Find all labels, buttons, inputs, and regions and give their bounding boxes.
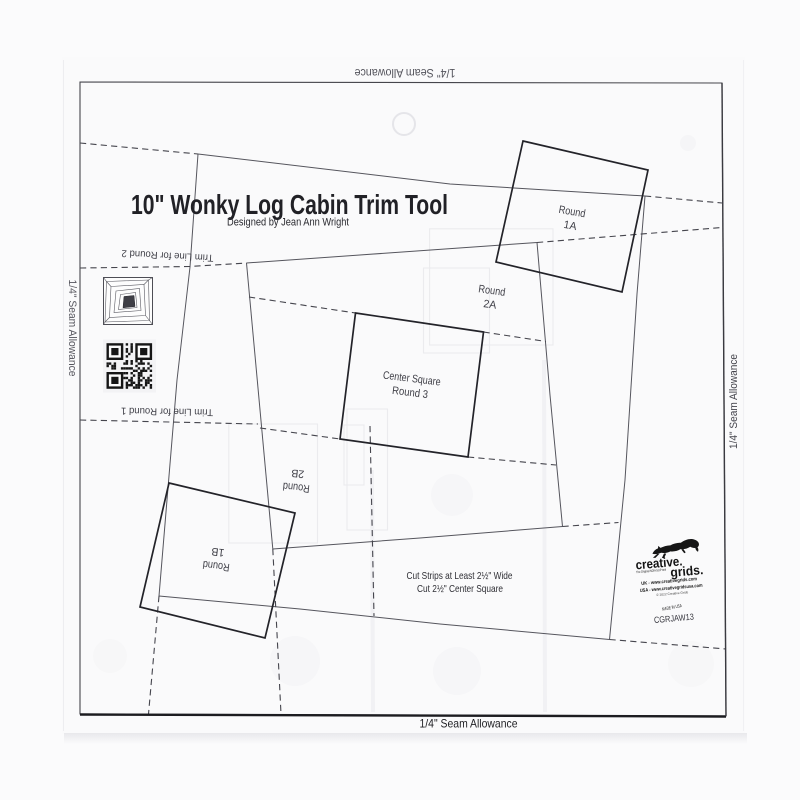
svg-text:1B: 1B [211, 545, 225, 558]
svg-text:2B: 2B [291, 466, 305, 479]
svg-text:1/4" Seam Allowance: 1/4" Seam Allowance [420, 717, 518, 731]
svg-text:10" Wonky Log Cabin Trim Tool: 10" Wonky Log Cabin Trim Tool [131, 189, 448, 220]
svg-text:Trim Line for Round 1: Trim Line for Round 1 [121, 405, 214, 418]
svg-text:1/4" Seam Allowance: 1/4" Seam Allowance [728, 354, 740, 449]
svg-text:1/4" Seam Allowance: 1/4" Seam Allowance [355, 66, 456, 78]
svg-text:Cut 2½" Center Square: Cut 2½" Center Square [417, 584, 503, 595]
svg-text:Designed by Jean Ann Wright: Designed by Jean Ann Wright [227, 217, 349, 229]
svg-text:Cut Strips at Least 2½" Wide: Cut Strips at Least 2½" Wide [407, 571, 513, 582]
svg-text:1/4" Seam Allowance: 1/4" Seam Allowance [66, 280, 78, 377]
svg-text:2A: 2A [483, 298, 498, 312]
